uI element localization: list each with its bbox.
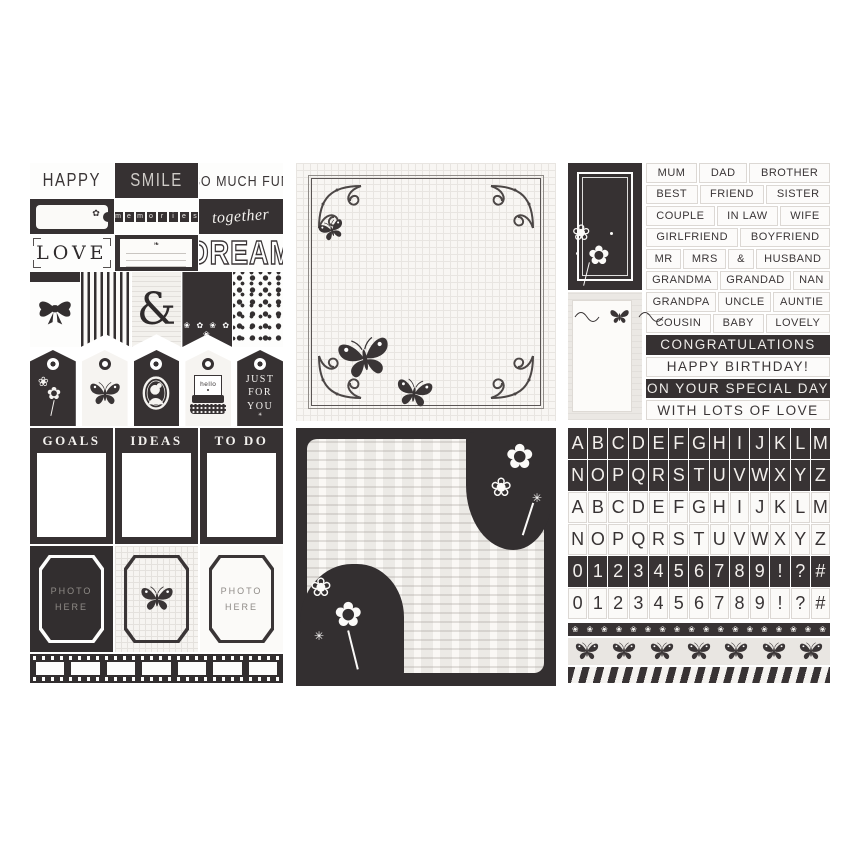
- letter-tile: V: [730, 524, 749, 555]
- journaling-card: ❧: [120, 239, 192, 267]
- letter-tile: 3: [629, 588, 648, 619]
- hello-label: hello: [200, 381, 216, 388]
- flower-icon: ❀: [586, 626, 593, 634]
- film-cell: [36, 662, 64, 675]
- cameo-icon: [141, 375, 171, 413]
- film-cell: [107, 662, 135, 675]
- film-cell: [142, 662, 170, 675]
- sheet-word-stickers: ❀ ✿ MUMDADBROTHERBESTFRIENDSISTERCOUPLEI…: [568, 163, 830, 420]
- word-sticker: BOYFRIEND: [740, 228, 830, 248]
- flower-icon: ❀: [601, 626, 608, 634]
- letter-tile: e: [125, 212, 134, 222]
- letter-tile: 5: [669, 556, 688, 587]
- butterfly-flourish-icon: [573, 307, 665, 325]
- journal-line: [126, 261, 186, 267]
- letter-tile: X: [770, 524, 789, 555]
- word-sticker: MR: [646, 249, 681, 269]
- flower-icon: ❀: [746, 626, 753, 634]
- letter-tile: A: [568, 428, 587, 459]
- together-label: together: [212, 206, 270, 228]
- letter-tile: 0: [568, 588, 587, 619]
- word-sticker-row: GRANDPAUNCLEAUNTIE: [646, 292, 830, 312]
- flower-stem: [583, 262, 590, 286]
- letter-tile: 1: [588, 556, 607, 587]
- flower-icon: ❀: [732, 626, 739, 634]
- flower-stem: [521, 503, 533, 536]
- dot: [610, 232, 613, 235]
- family-word-rows: MUMDADBROTHERBESTFRIENDSISTERCOUPLEIN LA…: [646, 163, 830, 333]
- card-love: LOVE: [30, 235, 114, 271]
- letter-tile: G: [689, 492, 708, 523]
- butterfly-icon: [761, 641, 787, 662]
- letter-tile: Z: [811, 524, 830, 555]
- butterfly-icon: [686, 641, 712, 662]
- letter-tile: F: [669, 492, 688, 523]
- alphabet-row: ABCDEFGHIJKLM: [568, 428, 830, 459]
- word-sticker: DAD: [699, 163, 747, 183]
- tag-cameo: [134, 350, 180, 426]
- flower-icon: ❀: [688, 626, 695, 634]
- letter-tile: N: [568, 460, 587, 491]
- letter-tile: 6: [689, 588, 708, 619]
- letter-tile: 6: [689, 556, 708, 587]
- sheet-grid-frame-paper: [296, 163, 556, 421]
- greeting-sticker: ON YOUR SPECIAL DAY: [646, 379, 830, 399]
- word-sticker: LOVELY: [766, 314, 830, 334]
- flower-icon: ❀: [616, 626, 623, 634]
- photo-column: ❀ ✿: [568, 163, 642, 420]
- flower-icon: ❀: [659, 626, 666, 634]
- word-sticker-row: COUPLEIN LAWWIFE: [646, 206, 830, 226]
- letter-tile: e: [180, 212, 189, 222]
- card-dream: DREAM: [199, 235, 283, 271]
- flower-cluster-icon: ❀ ✿: [570, 218, 630, 288]
- word-sticker: MRS: [683, 249, 726, 269]
- word-sticker: NAN: [793, 271, 830, 291]
- dot: [207, 389, 209, 391]
- letter-tile: 5: [669, 588, 688, 619]
- pennant-bow: [30, 272, 80, 347]
- word-sticker: GIRLFRIEND: [646, 228, 739, 248]
- letter-tile: 2: [608, 556, 627, 587]
- product-image-canvas: HAPPY SMILE SO MUCH FUN ✿ memories toget…: [0, 0, 850, 850]
- photo-frame-dark: PHOTO HERE: [30, 546, 113, 652]
- letter-tile: P: [608, 524, 627, 555]
- gift-tag-row: ❀ ✿ hello: [30, 350, 283, 426]
- corner-ornament: [33, 238, 41, 246]
- washi-strip-flowers: ❀❀❀❀❀❀❀❀❀❀❀❀❀❀❀❀❀❀: [568, 623, 830, 636]
- alphabet-row: NOPQRSTUVWXYZ: [568, 524, 830, 555]
- blank-list-area: [122, 453, 191, 537]
- letter-tile: Y: [791, 460, 810, 491]
- flourish-corner-icon: [487, 182, 537, 232]
- letter-tile: 1: [588, 588, 607, 619]
- alphabet-row: ABCDEFGHIJKLM: [568, 492, 830, 523]
- word-sticker-row: MRMRS&HUSBAND: [646, 249, 830, 269]
- letter-tile: ?: [791, 556, 810, 587]
- flower-icon: ❀: [630, 626, 637, 634]
- dot: [576, 252, 579, 255]
- love-label: LOVE: [36, 242, 107, 264]
- dream-label: DREAM: [199, 235, 283, 271]
- letter-tile: M: [811, 428, 830, 459]
- flourish-corner-icon: [487, 352, 537, 402]
- butterfly-icon: [139, 584, 175, 614]
- letter-tile: i: [169, 212, 178, 222]
- letter-tile: O: [588, 524, 607, 555]
- flower-icon: ❀: [776, 626, 783, 634]
- word-sticker: AUNTIE: [773, 292, 830, 312]
- card-journaling: ❧: [115, 235, 199, 271]
- letter-tile: N: [568, 524, 587, 555]
- film-cell: [178, 662, 206, 675]
- letter-tile: s: [191, 212, 199, 222]
- goals-label: GOALS: [42, 433, 100, 449]
- word-sticker-row: GRANDMAGRANDADNAN: [646, 271, 830, 291]
- pennant-dots: [233, 272, 283, 347]
- butterfly-icon: [332, 330, 397, 386]
- letter-tile: I: [730, 428, 749, 459]
- flower-glyph: ✿: [506, 440, 535, 474]
- word-sticker: COUPLE: [646, 206, 715, 226]
- letter-tile: !: [770, 556, 789, 587]
- tag-hole: [47, 358, 59, 370]
- flower-cluster-icon: ✿ ❀ ✳: [300, 564, 404, 682]
- word-sticker-row: BESTFRIENDSISTER: [646, 185, 830, 205]
- alphabet-row: NOPQRSTUVWXYZ: [568, 460, 830, 491]
- letter-tile: L: [791, 492, 810, 523]
- octagon-frame: [124, 555, 189, 643]
- letter-tile: K: [770, 428, 789, 459]
- card-ideas: IDEAS: [115, 428, 198, 544]
- sheet-flower-frame-paper: ✿ ❀ ✳ ✿ ❀ ✳: [296, 428, 556, 686]
- tag-hole: [150, 358, 162, 370]
- word-sticker: MUM: [646, 163, 697, 183]
- letter-tile: P: [608, 460, 627, 491]
- word-sticker: SISTER: [766, 185, 830, 205]
- letter-tile: H: [710, 492, 729, 523]
- tag-typewriter: hello: [185, 350, 231, 426]
- film-cell: [213, 662, 241, 675]
- flower-icon: ❀: [645, 626, 652, 634]
- corner-ornament: [103, 238, 111, 246]
- greeting-sticker: HAPPY BIRTHDAY!: [646, 357, 830, 377]
- butterfly-icon: [649, 641, 675, 662]
- letter-tile: !: [770, 588, 789, 619]
- letter-tile: T: [689, 460, 708, 491]
- typewriter-carriage: [192, 395, 224, 403]
- letter-tile: m: [136, 212, 145, 222]
- washi-strip-diagonal: [568, 667, 830, 683]
- letter-tile: D: [629, 492, 648, 523]
- sparkle-icon: ✳: [314, 630, 324, 642]
- letter-tile: W: [750, 460, 769, 491]
- letter-tile: 7: [710, 556, 729, 587]
- ideas-label: IDEAS: [130, 433, 182, 449]
- octagon-frame: PHOTO HERE: [39, 555, 104, 643]
- letter-tile: C: [608, 428, 627, 459]
- letter-tile: J: [750, 428, 769, 459]
- alphabet-row: 0123456789!?#: [568, 556, 830, 587]
- flower-icon: ❀: [819, 626, 826, 634]
- tag-butterfly: [82, 350, 128, 426]
- letter-tile: A: [568, 492, 587, 523]
- letter-tile: T: [689, 524, 708, 555]
- letter-tile: r: [158, 212, 167, 222]
- card-label-ticket: ✿: [30, 199, 114, 234]
- letter-tile: U: [710, 524, 729, 555]
- letter-tile: 9: [750, 588, 769, 619]
- butterfly-icon: [574, 641, 600, 662]
- pennant-ampersand: &: [132, 272, 182, 347]
- tag-hole: [254, 358, 266, 370]
- photo-here-label: PHOTO HERE: [47, 583, 97, 615]
- word-sticker: GRANDMA: [646, 271, 718, 291]
- flower-glyph: ❀: [310, 574, 332, 600]
- flower-icon: ❀: [805, 626, 812, 634]
- washi-strip-butterflies: [568, 638, 830, 665]
- pennant-floral: ❀ ✿ ❀ ✿ ❀: [182, 272, 232, 347]
- letter-tile: 3: [629, 556, 648, 587]
- letter-tile: F: [669, 428, 688, 459]
- photo-here-label: PHOTO HERE: [217, 583, 267, 615]
- corner-ornament: [103, 260, 111, 268]
- letter-tile: m: [115, 212, 123, 222]
- letter-tile: 4: [649, 588, 668, 619]
- pennant-row: & ❀ ✿ ❀ ✿ ❀: [30, 272, 283, 347]
- tag-just-for-you: ✳ JUST FOR YOU ✳: [237, 350, 283, 426]
- tag-flower: ❀ ✿: [30, 350, 76, 426]
- letter-tile: Z: [811, 460, 830, 491]
- letter-tile: 0: [568, 556, 587, 587]
- butterfly-icon: [392, 374, 436, 412]
- flower-icon: ❀: [572, 626, 579, 634]
- letter-tile: B: [588, 428, 607, 459]
- alphabet-tile-rows: ABCDEFGHIJKLMNOPQRSTUVWXYZABCDEFGHIJKLMN…: [568, 428, 830, 620]
- word-sticker: BABY: [713, 314, 764, 334]
- card-together: together: [199, 199, 283, 234]
- sparkle-icon: ✳: [237, 413, 283, 420]
- letter-tile: 8: [730, 588, 749, 619]
- butterfly-journal-card: [572, 300, 632, 412]
- film-cell: [71, 662, 99, 675]
- butterfly-icon: [723, 641, 749, 662]
- word-sticker-row: COUSINBABYLOVELY: [646, 314, 830, 334]
- tag-hole: [202, 358, 214, 370]
- word-sticker: FRIEND: [700, 185, 765, 205]
- flower-icon: ❀ ✿: [38, 372, 68, 416]
- sheet-cards-and-tags: HAPPY SMILE SO MUCH FUN ✿ memories toget…: [30, 163, 283, 420]
- letter-tile: M: [811, 492, 830, 523]
- letter-tile: 8: [730, 556, 749, 587]
- blank-list-area: [207, 453, 276, 537]
- letter-tile: #: [811, 588, 830, 619]
- letter-tile: ?: [791, 588, 810, 619]
- smile-label: SMILE: [130, 170, 183, 190]
- flower-icon: ❀: [790, 626, 797, 634]
- letter-tile: G: [689, 428, 708, 459]
- word-sticker-row: GIRLFRIENDBOYFRIEND: [646, 228, 830, 248]
- word-sticker: IN LAW: [717, 206, 778, 226]
- word-sticker: GRANDAD: [720, 271, 791, 291]
- typewriter-paper: hello: [194, 375, 222, 397]
- flower-icon: ❀: [761, 626, 768, 634]
- butterfly-icon: [611, 641, 637, 662]
- letter-tile: Q: [629, 460, 648, 491]
- word-sticker-row: MUMDADBROTHER: [646, 163, 830, 183]
- flower-stem: [347, 630, 358, 669]
- typewriter-icon: hello: [190, 375, 226, 414]
- letter-tile: L: [791, 428, 810, 459]
- butterfly-icon: [798, 641, 824, 662]
- letter-tile: Q: [629, 524, 648, 555]
- greeting-sticker: WITH LOTS OF LOVE: [646, 400, 830, 420]
- letter-tile: Y: [791, 524, 810, 555]
- letter-tile: E: [649, 428, 668, 459]
- flower-icon: ❀: [717, 626, 724, 634]
- letter-tile: U: [710, 460, 729, 491]
- letter-tile: o: [147, 212, 156, 222]
- flower-glyph: ✿: [588, 240, 610, 271]
- butterfly-icon: [88, 380, 122, 408]
- photo-frame-light: PHOTO HERE: [200, 546, 283, 652]
- letter-tile: C: [608, 492, 627, 523]
- letter-tile: K: [770, 492, 789, 523]
- alphabet-row: 0123456789!?#: [568, 588, 830, 619]
- letter-tile: B: [588, 492, 607, 523]
- film-frames: [36, 662, 277, 675]
- letter-tile: X: [770, 460, 789, 491]
- memories-letter-tiles: memories: [115, 212, 199, 222]
- word-sticker: BEST: [646, 185, 698, 205]
- pennant-stripes: [81, 272, 131, 347]
- photo-frame-row: PHOTO HERE PHOTO HERE: [30, 546, 283, 652]
- word-sticker: &: [728, 249, 753, 269]
- letter-tile: J: [750, 492, 769, 523]
- letter-tile: 4: [649, 556, 668, 587]
- letter-tile: W: [750, 524, 769, 555]
- card-goals: GOALS: [30, 428, 113, 544]
- card-so-much-fun: SO MUCH FUN: [199, 163, 283, 198]
- letter-tile: R: [649, 524, 668, 555]
- card-grid: HAPPY SMILE SO MUCH FUN ✿ memories toget…: [30, 163, 283, 271]
- sheet-planner: GOALS IDEAS TO DO PHOTO HERE: [30, 428, 283, 685]
- flower-icon: ❀: [703, 626, 710, 634]
- todo-label: TO DO: [215, 433, 269, 449]
- letter-tile: S: [669, 460, 688, 491]
- letter-tile: V: [730, 460, 749, 491]
- just-for-you-text: JUST FOR YOU: [246, 374, 275, 412]
- so-much-fun-label: SO MUCH FUN: [199, 172, 283, 189]
- just-for-you-label: ✳ JUST FOR YOU ✳: [237, 366, 283, 420]
- bow-icon: [34, 293, 76, 327]
- corner-ornament: [33, 260, 41, 268]
- list-card-row: GOALS IDEAS TO DO: [30, 428, 283, 544]
- flower-icon: ✿: [92, 209, 100, 218]
- sheet-alphabet-stickers: ABCDEFGHIJKLMNOPQRSTUVWXYZABCDEFGHIJKLMN…: [568, 428, 830, 685]
- word-sticker: UNCLE: [718, 292, 771, 312]
- film-cell: [249, 662, 277, 675]
- greeting-rows: CONGRATULATIONSHAPPY BIRTHDAY!ON YOUR SP…: [646, 335, 830, 420]
- card-todo: TO DO: [200, 428, 283, 544]
- word-sticker: BROTHER: [749, 163, 830, 183]
- flower-glyph: ✿: [334, 598, 363, 632]
- happy-label: HAPPY: [43, 170, 101, 190]
- greeting-sticker: CONGRATULATIONS: [646, 335, 830, 355]
- tag-hole: [99, 358, 111, 370]
- octagon-frame: PHOTO HERE: [209, 555, 274, 643]
- flower-border: ❀ ✿ ❀ ✿ ❀: [182, 321, 232, 339]
- blank-list-area: [37, 453, 106, 537]
- card-happy: HAPPY: [30, 163, 114, 198]
- flower-icon: ❀: [674, 626, 681, 634]
- word-sticker-column: MUMDADBROTHERBESTFRIENDSISTERCOUPLEIN LA…: [646, 163, 830, 420]
- flower-glyph: ❀: [490, 474, 512, 500]
- letter-tile: 7: [710, 588, 729, 619]
- letter-tile: R: [649, 460, 668, 491]
- word-sticker: HUSBAND: [756, 249, 831, 269]
- letter-tile: 9: [750, 556, 769, 587]
- card-smile: SMILE: [115, 163, 199, 198]
- photo-frame-butterfly: [115, 546, 198, 652]
- blank-label-ticket: ✿: [36, 205, 108, 229]
- letter-tile: H: [710, 428, 729, 459]
- film-strip: [30, 654, 283, 683]
- letter-tile: E: [649, 492, 668, 523]
- letter-tile: #: [811, 556, 830, 587]
- sprig-icon: ❧: [154, 241, 160, 248]
- ampersand-label: &: [137, 288, 176, 332]
- letter-tile: 2: [608, 588, 627, 619]
- letter-tile: I: [730, 492, 749, 523]
- banner-band: [30, 272, 80, 282]
- card-memories: memories: [115, 199, 199, 234]
- photo-mat-dark: ❀ ✿: [568, 163, 642, 290]
- word-sticker: WIFE: [780, 206, 830, 226]
- letter-tile: D: [629, 428, 648, 459]
- textured-area: [568, 292, 642, 420]
- typewriter-keys: [190, 404, 226, 414]
- letter-tile: O: [588, 460, 607, 491]
- letter-tile: S: [669, 524, 688, 555]
